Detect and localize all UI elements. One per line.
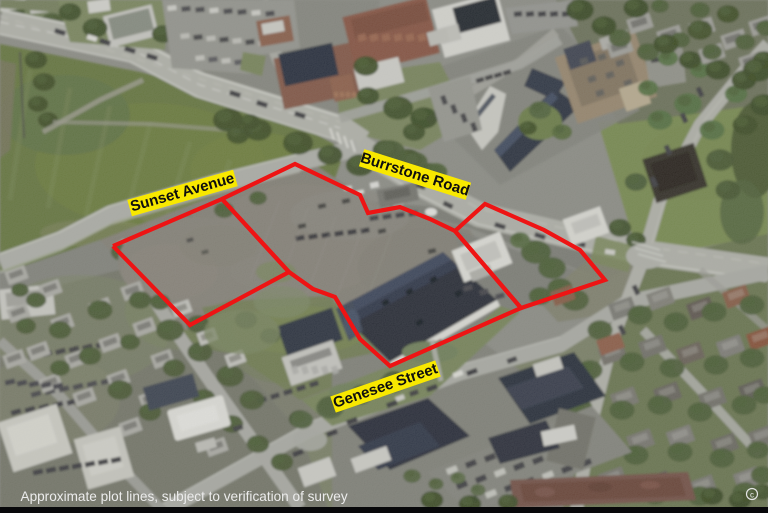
svg-text:c: c [750,491,754,500]
svg-text:Approximate plot lines, subjec: Approximate plot lines, subject to verif… [21,489,348,504]
